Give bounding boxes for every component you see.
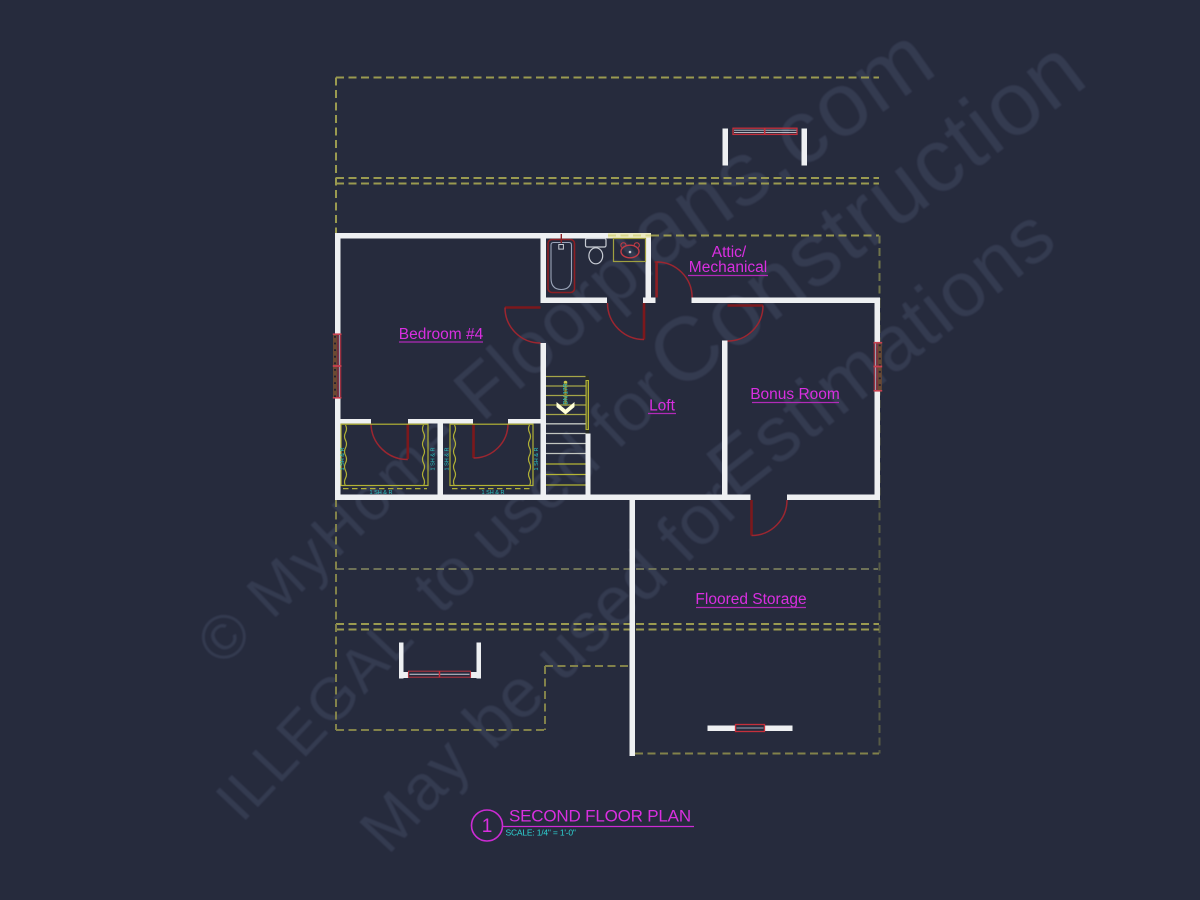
svg-text:1 SH & R: 1 SH & R — [534, 448, 540, 471]
svg-text:Bonus Room: Bonus Room — [750, 386, 840, 403]
svg-text:Bedroom #4: Bedroom #4 — [399, 326, 484, 343]
svg-text:Floored Storage: Floored Storage — [695, 591, 806, 608]
svg-text:Loft: Loft — [649, 398, 676, 415]
svg-text:Mechanical: Mechanical — [689, 259, 767, 276]
svg-text:DN 17R: DN 17R — [564, 383, 570, 405]
svg-text:SECOND FLOOR PLAN: SECOND FLOOR PLAN — [509, 807, 691, 826]
svg-text:1 SH & R: 1 SH & R — [340, 448, 346, 471]
svg-text:1 SH & R: 1 SH & R — [431, 448, 437, 471]
svg-text:SCALE: 1/4" = 1'-0": SCALE: 1/4" = 1'-0" — [506, 828, 576, 838]
svg-text:1: 1 — [482, 816, 493, 837]
svg-text:1 SH & R: 1 SH & R — [445, 448, 451, 471]
